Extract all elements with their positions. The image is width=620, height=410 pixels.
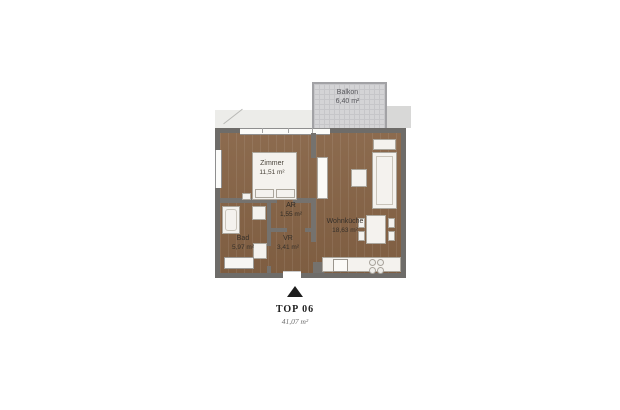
unit-caption: TOP 06 41,07 m² bbox=[235, 284, 355, 326]
room-label-vr: VR 3,41 m² bbox=[268, 235, 308, 252]
neighbor-structure-right bbox=[383, 106, 411, 128]
unit-label: TOP 06 bbox=[235, 304, 355, 315]
shower bbox=[222, 206, 240, 234]
balcony-label: Balkon 6,40 m² bbox=[312, 88, 383, 106]
room-area: 3,41 m² bbox=[268, 244, 308, 252]
room-name: VR bbox=[268, 235, 308, 244]
burner-icon bbox=[369, 259, 376, 266]
floor-plan-canvas: Balkon 6,40 m² Zimme bbox=[0, 0, 620, 410]
pillow bbox=[255, 189, 274, 198]
room-name: Wohnküche bbox=[314, 218, 376, 227]
balcony-name: Balkon bbox=[312, 88, 383, 97]
room-name: Bad bbox=[223, 235, 263, 244]
side-table bbox=[351, 169, 367, 187]
wall-zimmer-living bbox=[311, 133, 316, 158]
wall-bad-right bbox=[267, 266, 271, 273]
wall-ar-vr bbox=[271, 228, 287, 232]
nightstand bbox=[242, 193, 251, 200]
entrance-door-opening bbox=[283, 271, 301, 281]
window-divider bbox=[312, 128, 313, 133]
window-band-top bbox=[240, 128, 330, 135]
washing-machine bbox=[252, 206, 266, 220]
room-label-zimmer: Zimmer 11,51 m² bbox=[242, 160, 302, 177]
room-area: 18,63 m² bbox=[314, 227, 376, 235]
chair bbox=[388, 231, 395, 241]
room-label-wohnkueche: Wohnküche 18,63 m² bbox=[314, 218, 376, 235]
wardrobe bbox=[372, 152, 397, 209]
window-divider bbox=[288, 128, 289, 133]
window-divider bbox=[262, 128, 263, 133]
pillow bbox=[276, 189, 295, 198]
room-area: 11,51 m² bbox=[242, 169, 302, 177]
burner-icon bbox=[377, 259, 384, 266]
unit-total-area: 41,07 m² bbox=[235, 317, 355, 326]
burner-icon bbox=[377, 267, 384, 274]
wall-niche bbox=[224, 257, 254, 269]
room-label-ar: AR 1,55 m² bbox=[271, 202, 311, 219]
cabinet bbox=[373, 139, 396, 150]
cooktop-icon bbox=[368, 258, 385, 271]
sliding-door-leaf bbox=[317, 157, 328, 199]
room-name: AR bbox=[271, 202, 311, 211]
room-label-bad: Bad 5,97 m² bbox=[223, 235, 263, 252]
kitchen-sink-icon bbox=[333, 259, 348, 272]
room-area: 5,97 m² bbox=[223, 244, 263, 252]
room-area: 1,55 m² bbox=[271, 211, 311, 219]
window-left-wall bbox=[215, 150, 222, 188]
balcony-area-value: 6,40 m² bbox=[312, 97, 383, 106]
chair bbox=[388, 218, 395, 228]
burner-icon bbox=[369, 267, 376, 274]
room-name: Zimmer bbox=[242, 160, 302, 169]
north-arrow-icon bbox=[287, 286, 303, 297]
